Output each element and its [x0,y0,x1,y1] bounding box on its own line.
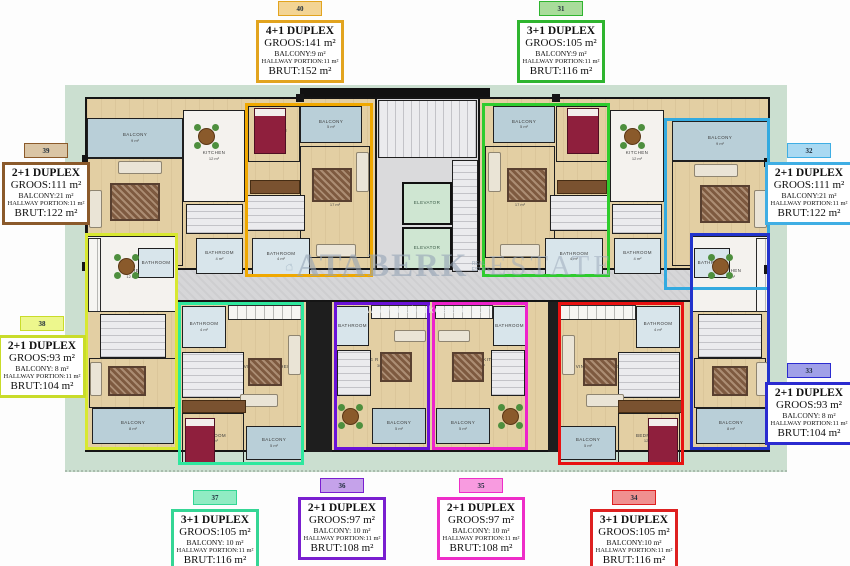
dining-table [198,128,215,145]
sofa [288,335,301,375]
stairs [182,352,244,398]
unit-label-34: 34 3+1 DUPLEX GROOS:105 m² BALCONY:10 m²… [593,490,675,566]
stairs [378,100,477,158]
wall-stub [552,94,560,102]
kitchen-counter [435,305,493,319]
sofa [118,161,162,174]
room-bathroom-37: BATHROOM4 m² [182,306,226,348]
room-balcony-35: BALCONY5 m² [436,408,490,444]
sofa [90,362,102,396]
kitchen-counter [756,238,769,312]
unit-label-40: 40 4+1 DUPLEX GROOS:141 m² BALCONY:9 m² … [256,1,344,83]
stairs [618,352,680,398]
room-balcony-31: BALCONY5 m² [493,106,555,143]
stairs [247,195,305,231]
shaft-wall [548,302,558,452]
stairs [491,350,525,396]
bed [648,418,678,464]
unit-number-chip: 39 [24,143,68,158]
unit-card: 3+1 DUPLEX GROOS:105 m² BALCONY:10 m² HA… [590,509,679,566]
wardrobe [182,400,246,413]
room-bathroom-34: BATHROOM4 m² [636,306,680,348]
unit-card: 2+1 DUPLEX GROOS:111 m² BALCONY:21 m² HA… [765,162,850,225]
dining-table [502,408,519,425]
unit-label-38: 38 2+1 DUPLEX GROOS:93 m² BALCONY: 8 m² … [2,316,82,398]
stairs [337,350,371,396]
bed [567,108,599,154]
dining-table [118,258,135,275]
stairs [100,314,166,358]
wall-stub [764,265,770,274]
rug [312,168,352,202]
room-balcony-37: BALCONY5 m² [246,426,302,460]
room-balcony-36: BALCONY5 m² [372,408,426,444]
kitchen-counter [371,305,429,319]
wardrobe [557,180,607,194]
room-balcony-40: BALCONY5 m² [300,106,362,143]
shaft-wall [306,302,332,452]
room-balcony-32: BALCONY9 m² [672,121,768,161]
unit-card: 3+1 DUPLEX GROOS:105 m² BALCONY:9 m² HAL… [517,20,606,83]
kitchen-counter [560,305,636,320]
wall-stub [296,94,304,102]
unit-number-chip: 36 [320,478,364,493]
bed [185,418,215,464]
stairs [452,160,478,272]
unit-number-chip: 32 [787,143,831,158]
room-balcony-33: BALCONY8 m² [696,408,766,444]
rug [108,366,146,396]
unit-number-chip: 31 [539,1,583,16]
sofa [438,330,470,342]
unit-number-chip: 35 [459,478,503,493]
room-balcony-34: BALCONY5 m² [560,426,616,460]
room-kitchen-39: KITCHEN12 m² [183,110,245,202]
top-wall-band [300,88,490,97]
elevator-2: ELEVATOR [402,227,452,270]
room-bathroom-31: BATHROOM4 m² [545,238,603,275]
bed [254,108,286,154]
unit-number-chip: 38 [20,316,64,331]
rug [583,358,617,386]
room-bathroom-32: BATHROOM4 m² [614,238,661,274]
unit-label-36: 36 2+1 DUPLEX GROOS:97 m² BALCONY: 10 m²… [303,478,381,560]
rug [380,352,412,382]
unit-number-chip: 40 [278,1,322,16]
sofa [488,152,501,192]
room-balcony-39: BALCONY9 m² [87,118,183,158]
sofa [316,244,356,257]
room-balcony-38: BALCONY8 m² [92,408,174,444]
unit-card: 2+1 DUPLEX GROOS:111 m² BALCONY:21 m² HA… [2,162,91,225]
rug [452,352,484,382]
unit-label-35: 35 2+1 DUPLEX GROOS:97 m² BALCONY: 10 m²… [442,478,520,560]
sofa [89,190,102,228]
sofa [694,164,738,177]
sofa [356,152,369,192]
unit-label-32: 32 2+1 DUPLEX GROOS:111 m² BALCONY:21 m²… [770,143,848,225]
unit-card: 2+1 DUPLEX GROOS:97 m² BALCONY: 10 m² HA… [437,497,526,560]
sofa [562,335,575,375]
unit-number-chip: 33 [787,363,831,378]
unit-card: 2+1 DUPLEX GROOS:93 m² BALCONY: 8 m² HAL… [0,335,86,398]
rug [507,168,547,202]
rug [712,366,748,396]
rug [700,185,750,223]
stairs [186,204,243,234]
unit-label-37: 37 3+1 DUPLEX GROOS:105 m² BALCONY: 10 m… [173,490,257,566]
room-kitchen-32: KITCHEN12 m² [610,110,664,202]
stairs [612,204,662,234]
dining-table [342,408,359,425]
room-bathroom-40: BATHROOM4 m² [252,238,310,275]
unit-card: 4+1 DUPLEX GROOS:141 m² BALCONY:9 m² HAL… [256,20,345,83]
rug [110,183,160,221]
elevator-1: ELEVATOR [402,182,452,225]
rug [248,358,282,386]
room-bathroom-39: BATHROOM4 m² [196,238,243,274]
room-bathroom-38: BATHROOM [138,248,174,278]
stairs [550,195,608,231]
unit-number-chip: 34 [612,490,656,505]
unit-label-33: 33 2+1 DUPLEX GROOS:93 m² BALCONY: 8 m² … [770,363,848,445]
floorplan-image: ELEVATOR ELEVATOR BALCONY9 m² LIVING R.1… [0,0,850,566]
wardrobe [250,180,300,194]
unit-label-31: 31 3+1 DUPLEX GROOS:105 m² BALCONY:9 m² … [520,1,602,83]
kitchen-counter [228,305,304,320]
unit-card: 2+1 DUPLEX GROOS:93 m² BALCONY: 8 m² HAL… [765,382,850,445]
unit-number-chip: 37 [193,490,237,505]
unit-label-39: 39 2+1 DUPLEX GROOS:111 m² BALCONY:21 m²… [2,143,90,225]
sofa [500,244,540,257]
dining-table [624,128,641,145]
kitchen-counter [88,238,101,312]
wall-stub [82,262,88,271]
stairs [698,314,762,358]
unit-card: 2+1 DUPLEX GROOS:97 m² BALCONY: 10 m² HA… [298,497,387,560]
unit-card: 3+1 DUPLEX GROOS:105 m² BALCONY: 10 m² H… [171,509,260,566]
dining-table [712,258,729,275]
wardrobe [618,400,682,413]
sofa [394,330,426,342]
